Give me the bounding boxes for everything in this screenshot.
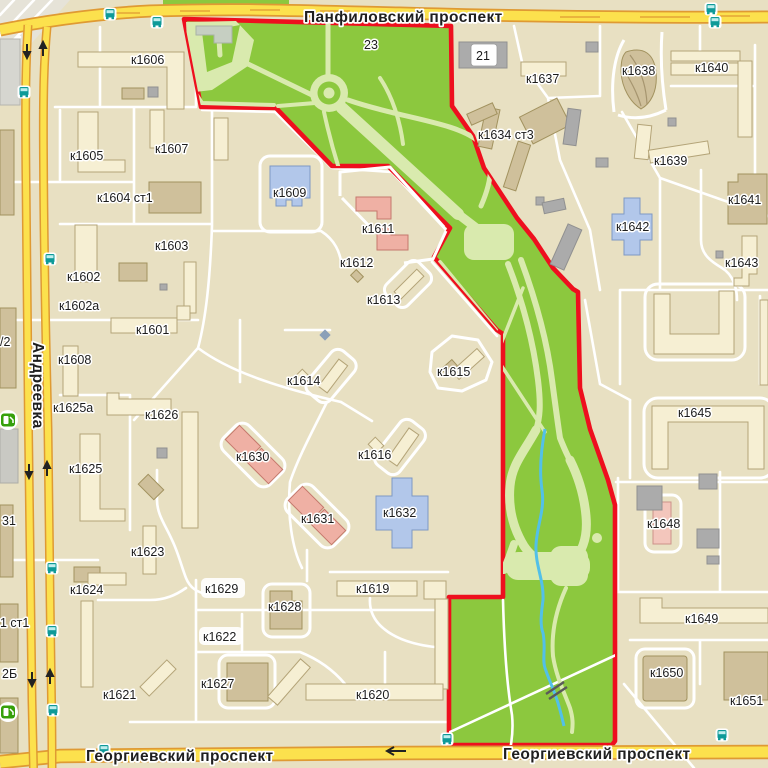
- svg-text:к1605: к1605: [70, 149, 103, 163]
- svg-text:к1609: к1609: [273, 186, 306, 200]
- svg-text:к1603: к1603: [155, 239, 188, 253]
- svg-text:Андреевка: Андреевка: [29, 342, 46, 429]
- svg-text:к1622: к1622: [203, 630, 236, 644]
- svg-text:к1625а: к1625а: [53, 401, 93, 415]
- svg-text:к1626: к1626: [145, 408, 178, 422]
- svg-text:к1619: к1619: [356, 582, 389, 596]
- svg-text:к1624: к1624: [70, 583, 103, 597]
- svg-text:к1616: к1616: [358, 448, 391, 462]
- svg-text:к1640: к1640: [695, 61, 728, 75]
- svg-text:к1628: к1628: [268, 600, 301, 614]
- svg-text:к1650: к1650: [650, 666, 683, 680]
- svg-text:к1651: к1651: [730, 694, 763, 708]
- svg-text:к1615: к1615: [437, 365, 470, 379]
- svg-text:к1645: к1645: [678, 406, 711, 420]
- svg-text:к1629: к1629: [205, 582, 238, 596]
- svg-text:21: 21: [476, 49, 490, 63]
- svg-text:к1613: к1613: [367, 293, 400, 307]
- svg-text:к1612: к1612: [340, 256, 373, 270]
- svg-text:Панфиловский проспект: Панфиловский проспект: [304, 9, 503, 26]
- svg-text:к1623: к1623: [131, 545, 164, 559]
- svg-text:к1643: к1643: [725, 256, 758, 270]
- svg-text:2Б: 2Б: [2, 667, 17, 681]
- svg-text:Георгиевский проспект: Георгиевский проспект: [86, 748, 274, 765]
- svg-text:/2: /2: [0, 335, 10, 349]
- svg-text:к1637: к1637: [526, 72, 559, 86]
- svg-text:к1649: к1649: [685, 612, 718, 626]
- svg-text:к1648: к1648: [647, 517, 680, 531]
- svg-text:к1631: к1631: [301, 512, 334, 526]
- svg-text:к1634 ст3: к1634 ст3: [478, 128, 534, 142]
- svg-text:к1611: к1611: [362, 222, 394, 236]
- svg-text:к1625: к1625: [69, 462, 102, 476]
- svg-text:Георгиевский проспект: Георгиевский проспект: [503, 746, 691, 763]
- svg-text:к1639: к1639: [654, 154, 687, 168]
- svg-text:к1601: к1601: [136, 323, 169, 337]
- svg-text:1 ст1: 1 ст1: [0, 616, 29, 630]
- svg-text:к1632: к1632: [383, 506, 416, 520]
- svg-text:к1638: к1638: [622, 64, 655, 78]
- svg-text:к1620: к1620: [356, 688, 389, 702]
- svg-text:23: 23: [364, 38, 378, 52]
- svg-text:к1627: к1627: [201, 677, 234, 691]
- svg-text:к1608: к1608: [58, 353, 91, 367]
- svg-text:к1621: к1621: [103, 688, 136, 702]
- svg-text:к1606: к1606: [131, 53, 164, 67]
- svg-text:31: 31: [2, 514, 16, 528]
- svg-text:к1642: к1642: [616, 220, 649, 234]
- svg-text:к1641: к1641: [728, 193, 761, 207]
- svg-text:к1602а: к1602а: [59, 299, 99, 313]
- svg-text:к1607: к1607: [155, 142, 188, 156]
- svg-text:к1602: к1602: [67, 270, 100, 284]
- svg-text:к1604 ст1: к1604 ст1: [97, 191, 153, 205]
- svg-text:к1614: к1614: [287, 374, 320, 388]
- svg-text:к1630: к1630: [236, 450, 269, 464]
